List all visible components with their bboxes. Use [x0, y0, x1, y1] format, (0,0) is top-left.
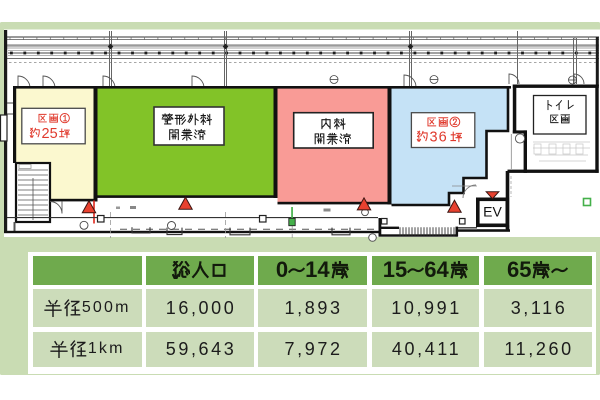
svg-text:EV: EV: [483, 204, 502, 220]
svg-text:25: 25: [42, 126, 58, 142]
svg-text:36: 36: [430, 129, 448, 145]
